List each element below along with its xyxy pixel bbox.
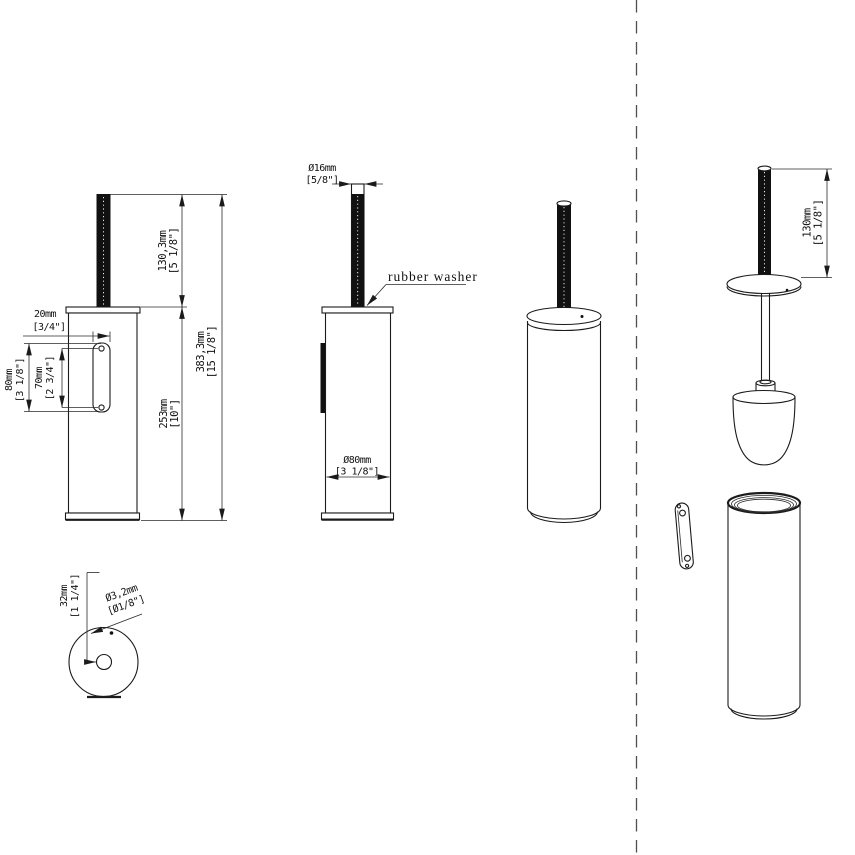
front-view: Ø16mm [5/8"] rubber washer Ø80mm [3 1/8"…	[305, 162, 477, 520]
side-view: 20mm [3/4"] 80mm [3 1/8"] 70mm [2 3/4"] …	[4, 194, 227, 521]
dim-total-height-in: [15 1/8"]	[206, 326, 218, 378]
dim-hole-spacing-mm: 70mm	[34, 366, 45, 389]
wall-plate	[93, 343, 110, 412]
body-bottom	[528, 508, 601, 519]
lid-top	[527, 308, 601, 325]
drawing-svg: 20mm [3/4"] 80mm [3 1/8"] 70mm [2 3/4"] …	[0, 0, 855, 855]
dim-plate-height-mm: 80mm	[4, 368, 15, 391]
exploded-view: 130mm [5 1/8"]	[675, 166, 832, 719]
dim-offset-in: [1 1/4"]	[70, 574, 81, 618]
handle-rod	[352, 194, 365, 307]
wall-bracket-edge	[321, 343, 326, 413]
brush-head-top	[733, 391, 795, 404]
dim-body-dia-mm: Ø80mm	[343, 454, 371, 466]
dim-handle-length-in: [5 1/8"]	[168, 228, 180, 275]
container-bottom	[728, 705, 800, 716]
bottom-view: 32mm [1 1/4"] Ø3,2mm [Ø1/8"]	[59, 573, 146, 698]
dim-plate-depth-mm: 20mm	[34, 309, 57, 320]
brush-head	[733, 397, 795, 465]
dim-handle-dia-mm: Ø16mm	[308, 162, 336, 174]
handle-rod	[758, 168, 771, 288]
leader-rubber-washer	[367, 285, 386, 306]
container-rim	[728, 493, 800, 513]
brush-collar	[756, 380, 775, 386]
lid	[66, 307, 140, 313]
handle-cap	[758, 166, 771, 171]
base-ring	[66, 513, 140, 520]
assembled-view	[527, 201, 601, 523]
lid-dot	[581, 315, 584, 318]
body	[326, 313, 391, 513]
lid	[322, 307, 393, 313]
wall-bracket	[675, 503, 694, 570]
dim-body-dia-in: [3 1/8"]	[335, 467, 379, 478]
dim-handle-dia-in: [5/8"]	[305, 175, 338, 186]
technical-drawing-sheet: 20mm [3/4"] 80mm [3 1/8"] 70mm [2 3/4"] …	[0, 0, 855, 855]
dim-hole-spacing-in: [2 3/4"]	[45, 356, 56, 400]
handle-cap	[557, 201, 571, 206]
base-outline	[69, 628, 138, 697]
lid-disc	[727, 275, 801, 294]
dim-plate-height-in: [3 1/8"]	[15, 358, 26, 402]
reference-dot	[110, 631, 114, 635]
dim-plate-depth-in: [3/4"]	[32, 322, 65, 333]
dim-body-height-in: [10"]	[169, 399, 181, 428]
dim-offset-mm: 32mm	[59, 584, 70, 607]
dim-handle-length-in: [5 1/8"]	[813, 200, 825, 247]
rubber-washer-note: rubber washer	[388, 269, 478, 284]
lid-dot	[786, 289, 789, 292]
